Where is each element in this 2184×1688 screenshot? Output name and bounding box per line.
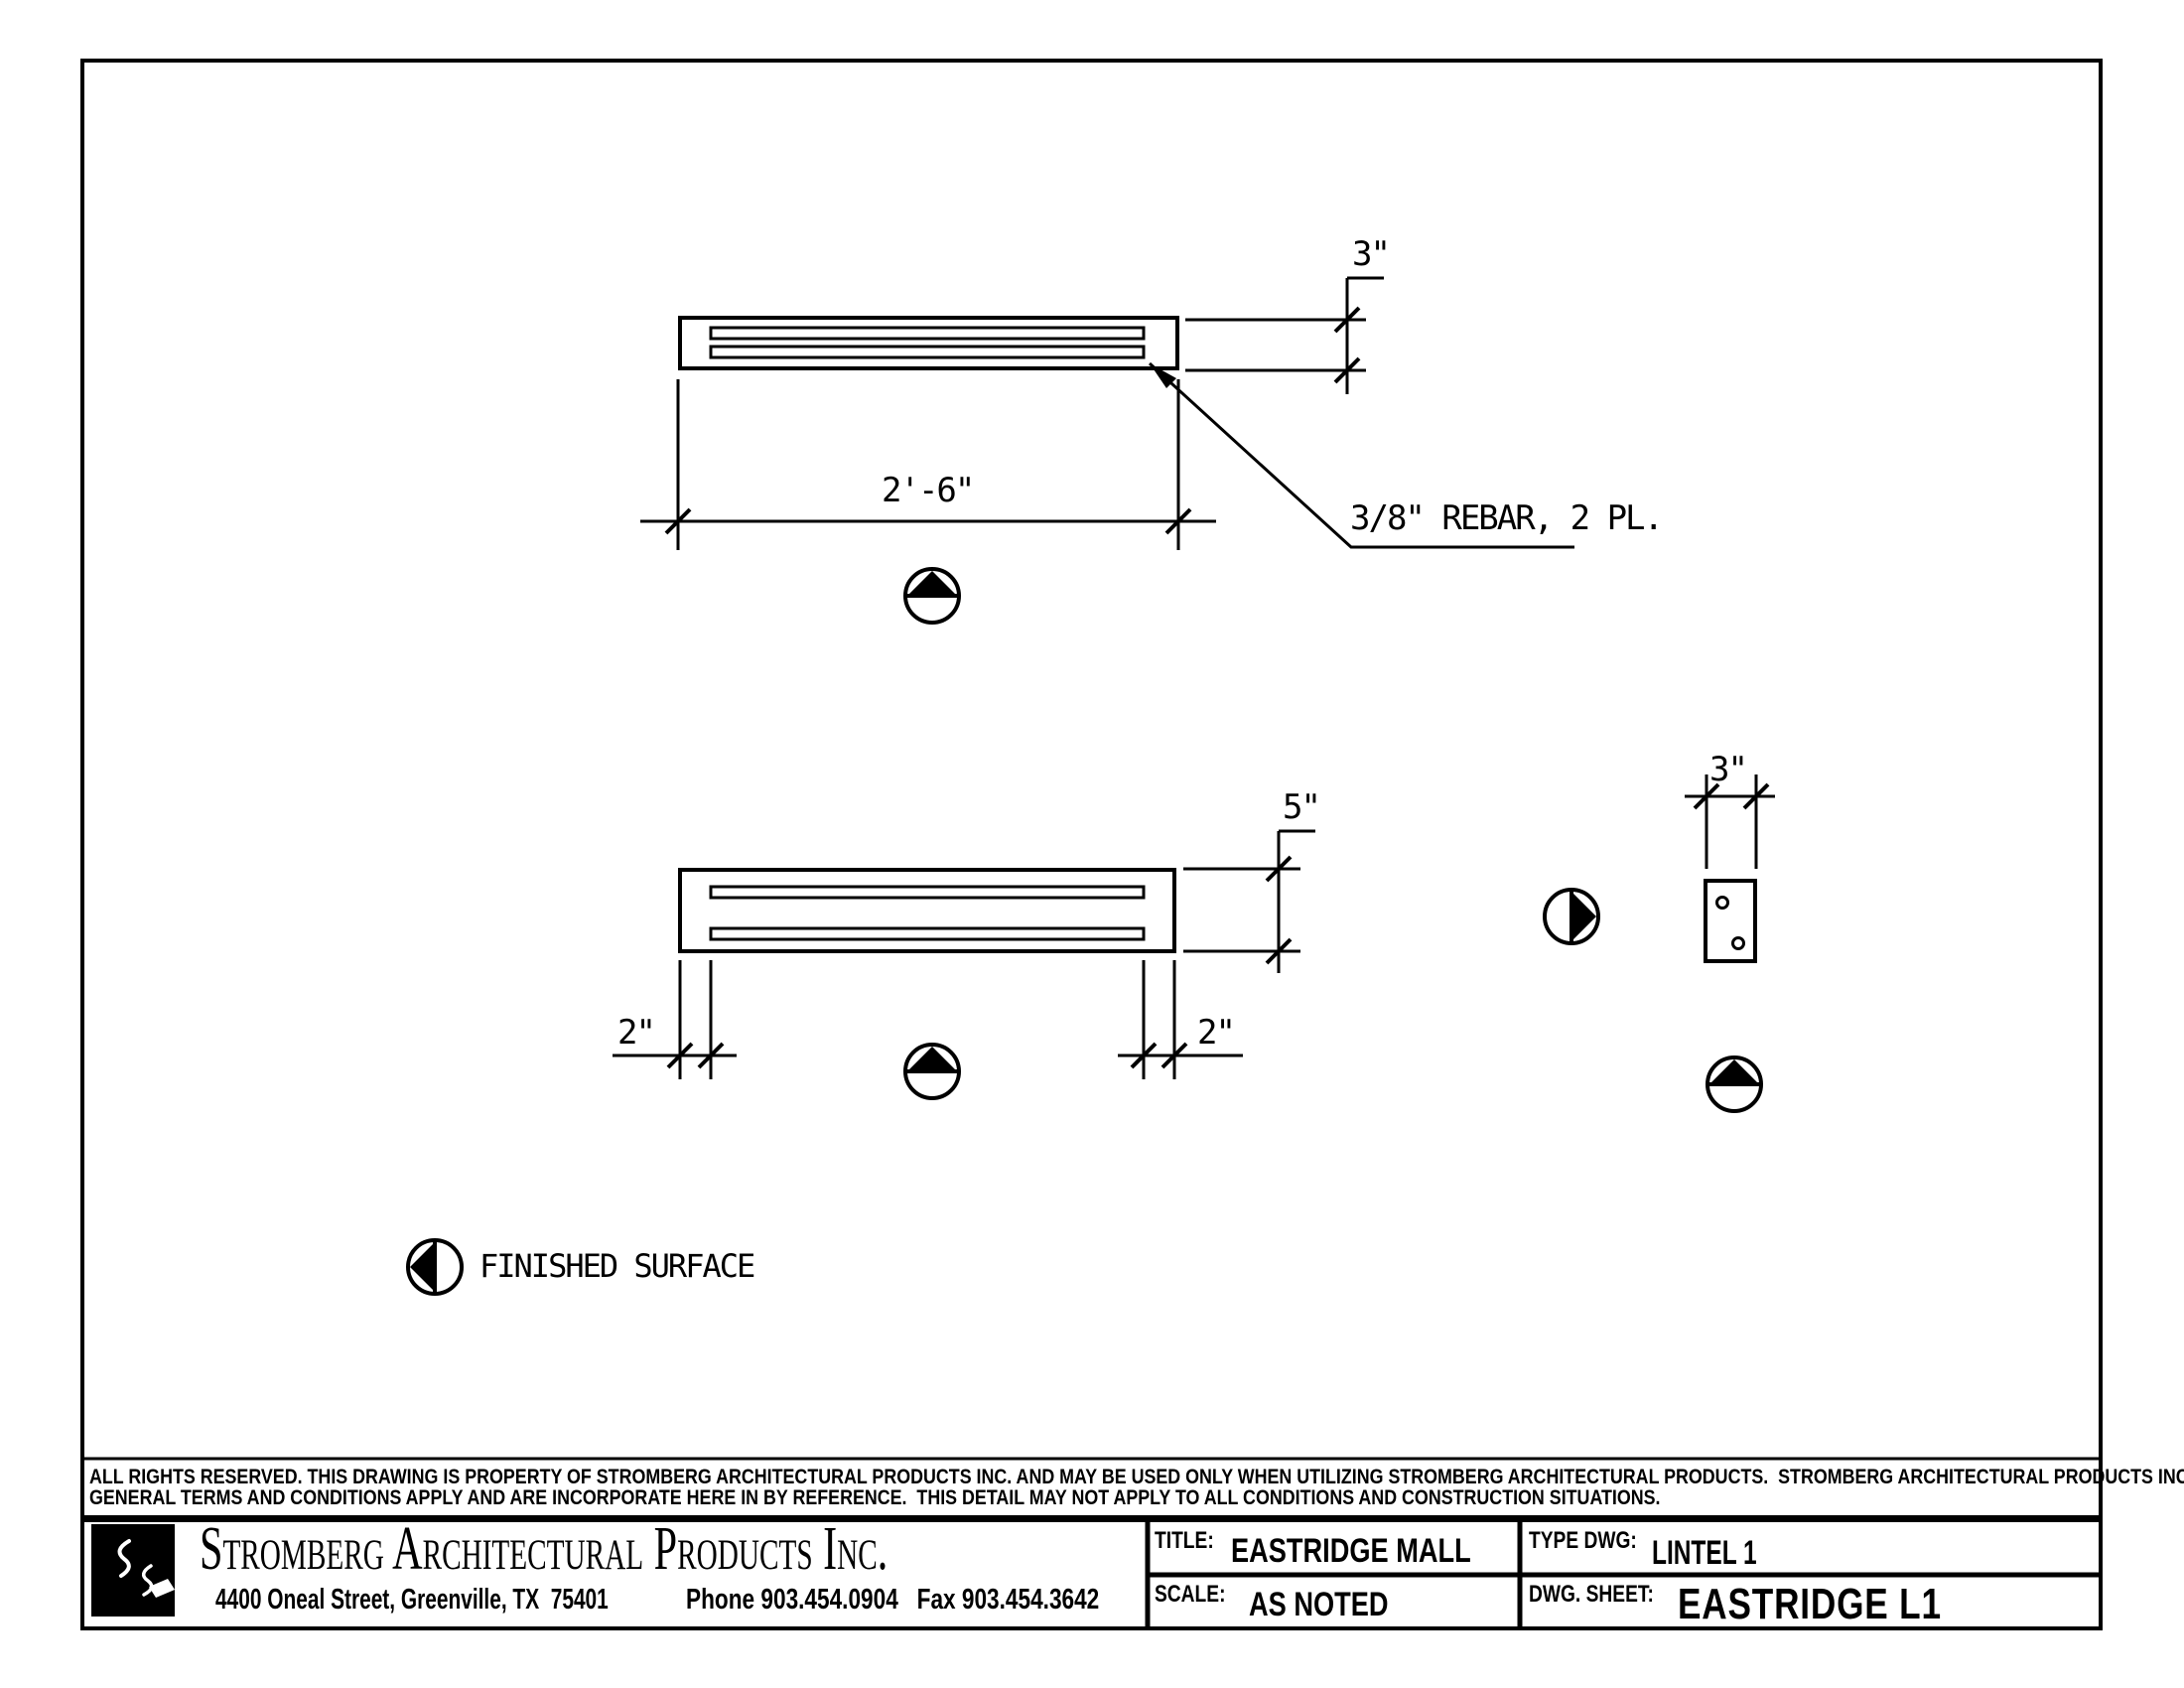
rebar-bar-4: [711, 928, 1144, 939]
dim-2ft6: [640, 379, 1216, 550]
rebar-bar-2: [711, 347, 1144, 357]
dim-3in-section-label: 3": [1709, 753, 1746, 786]
lintel-side-view: [680, 870, 1174, 951]
company-address: 4400 Oneal Street, Greenville, TX 75401: [215, 1586, 609, 1615]
drawing-linework: [0, 0, 2184, 1688]
rebar-end-1: [1717, 898, 1728, 909]
finished-surface-marker-left-legend: [408, 1240, 462, 1294]
company-name: Stromberg Architectural Products Inc.: [200, 1518, 887, 1580]
company-phone-fax: Phone 903.454.0904 Fax 903.454.3642: [686, 1586, 1099, 1615]
type-dwg-label: TYPE DWG:: [1529, 1529, 1637, 1553]
dim-3in-top-label: 3": [1352, 237, 1389, 271]
rebar-note-label: 3/8" REBAR, 2 PL.: [1350, 501, 1662, 535]
legal-line-2: GENERAL TERMS AND CONDITIONS APPLY AND A…: [89, 1487, 1661, 1508]
finished-surface-marker-up-side-view: [905, 1045, 959, 1098]
type-dwg-value: LINTEL 1: [1652, 1536, 1757, 1570]
rebar-end-2: [1733, 938, 1744, 949]
dim-3in-top: [1185, 278, 1384, 394]
finished-surface-legend-label: FINISHED SURFACE: [479, 1250, 753, 1282]
scale-label: SCALE:: [1155, 1583, 1225, 1607]
dim-5in: [1183, 831, 1315, 973]
scale-value: AS NOTED: [1249, 1588, 1389, 1621]
lintel-end-section: [1706, 881, 1755, 961]
rebar-bar-1: [711, 328, 1144, 339]
rebar-bar-3: [711, 887, 1144, 898]
page-border: [82, 61, 2101, 1628]
lintel-plan-view: [680, 318, 1177, 368]
dim-2in-left-label: 2": [617, 1016, 654, 1050]
dwg-sheet-label: DWG. SHEET:: [1529, 1583, 1654, 1607]
drawing-sheet: 3" 2'-6" 3/8" REBAR, 2 PL. 5" 2" 2" 3" F…: [0, 0, 2184, 1688]
dim-2in-right-label: 2": [1197, 1016, 1234, 1050]
finished-surface-marker-up-section: [1707, 1057, 1761, 1111]
company-logo: [91, 1524, 175, 1617]
dim-5in-label: 5": [1283, 790, 1319, 824]
finished-surface-marker-up-top-view: [905, 569, 959, 623]
legal-line-1: ALL RIGHTS RESERVED. THIS DRAWING IS PRO…: [89, 1467, 2184, 1487]
title-value: EASTRIDGE MALL: [1231, 1534, 1471, 1568]
dwg-sheet-value: EASTRIDGE L1: [1678, 1583, 1942, 1626]
title-label: TITLE:: [1155, 1529, 1214, 1553]
dim-2ft6-label: 2'-6": [882, 474, 973, 507]
finished-surface-marker-right-section: [1545, 890, 1598, 943]
